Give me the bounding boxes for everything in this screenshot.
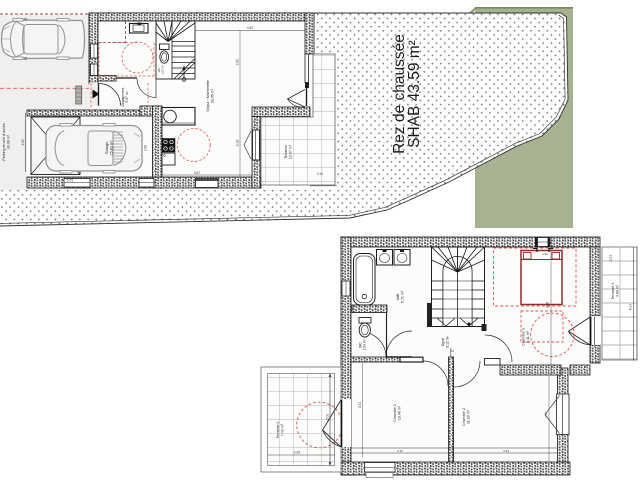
svg-text:3.06: 3.06 [546,302,550,308]
svg-text:9,11 m²: 9,11 m² [526,330,530,343]
svg-text:3,12 m²: 3,12 m² [446,335,450,347]
svg-text:33,00 m²: 33,00 m² [7,134,11,149]
svg-text:Chambre 2: Chambre 2 [462,408,466,426]
svg-text:33,05 m²: 33,05 m² [211,88,215,103]
svg-text:Chambre 3: Chambre 3 [522,328,526,346]
svg-text:11,30 m²: 11,30 m² [467,409,471,424]
svg-text:1,02 m²: 1,02 m² [161,65,165,75]
svg-text:3.50: 3.50 [236,59,240,66]
svg-text:Dgmt: Dgmt [441,338,445,346]
svg-text:4,60 m²: 4,60 m² [616,284,620,297]
svg-text:4.00: 4.00 [629,304,633,311]
svg-text:Terrasse 2: Terrasse 2 [276,422,280,439]
svg-text:Terrasse 3: Terrasse 3 [611,283,615,300]
svg-text:Séjour / Kitchenette: Séjour / Kitchenette [206,80,210,111]
svg-text:3.16: 3.16 [397,449,403,453]
svg-text:2.92: 2.92 [294,451,301,455]
svg-text:7,43 m²: 7,43 m² [281,423,285,436]
svg-text:2,97 m²: 2,97 m² [125,91,129,103]
svg-text:Parking et voie d´accès: Parking et voie d´accès [2,123,6,161]
svg-text:Chambre 1: Chambre 1 [393,404,397,422]
svg-text:Garage: Garage [105,142,109,155]
svg-text:Terrasse: Terrasse [284,145,288,159]
svg-text:2.53: 2.53 [609,255,613,261]
svg-text:13,07 m²: 13,07 m² [289,144,293,159]
svg-text:1,54 m²: 1,54 m² [363,339,367,351]
svg-text:5.75: 5.75 [67,179,73,183]
svg-text:SHAB 43.59 m²: SHAB 43.59 m² [406,40,423,148]
svg-text:SdB: SdB [396,293,400,300]
svg-text:1.53: 1.53 [542,252,548,256]
svg-text:1.13: 1.13 [544,412,548,418]
svg-text:2.50: 2.50 [21,139,25,146]
svg-text:4.87: 4.87 [247,26,254,30]
svg-text:3.10: 3.10 [317,172,323,176]
svg-text:5,71 m²: 5,71 m² [401,290,405,303]
svg-text:15,82 m²: 15,82 m² [110,140,114,156]
svg-text:3.63: 3.63 [503,449,509,453]
svg-text:3.18: 3.18 [236,140,240,147]
svg-text:91: 91 [451,349,455,353]
svg-text:10,46 m²: 10,46 m² [398,405,402,420]
svg-text:3.67: 3.67 [194,171,200,175]
svg-text:2.60: 2.60 [144,145,148,151]
svg-text:3.31: 3.31 [358,402,362,408]
